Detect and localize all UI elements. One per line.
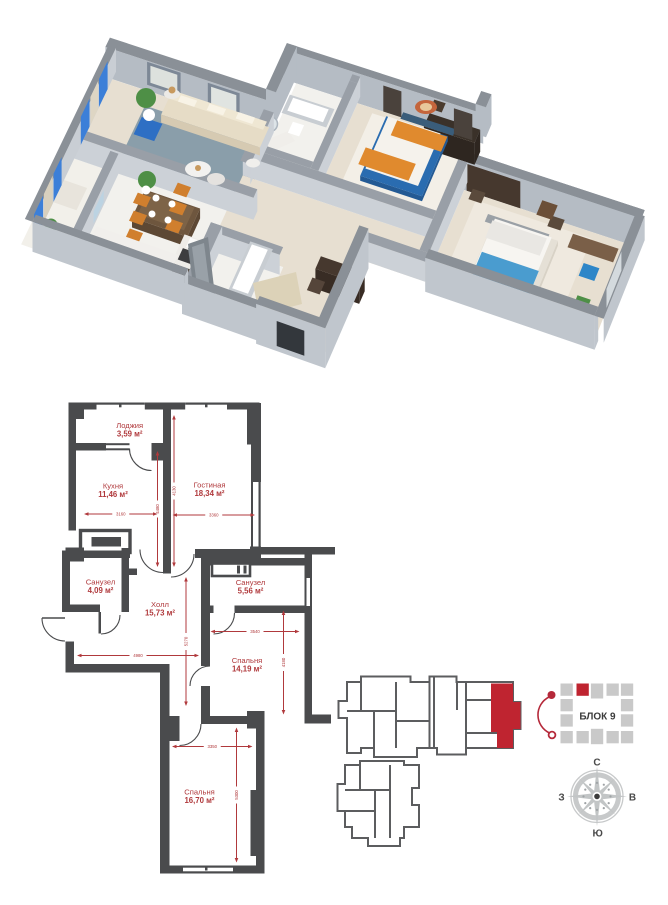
svg-text:14,19 м²: 14,19 м² [232, 665, 262, 674]
svg-text:Ю: Ю [593, 829, 603, 840]
svg-text:3360: 3360 [209, 513, 219, 518]
svg-text:4480: 4480 [155, 504, 160, 514]
svg-text:18,34 м²: 18,34 м² [194, 489, 224, 498]
svg-text:БЛОК 9: БЛОК 9 [579, 712, 616, 723]
svg-text:3540: 3540 [250, 629, 260, 634]
svg-text:5300: 5300 [234, 790, 239, 800]
svg-text:4,09 м²: 4,09 м² [88, 586, 114, 595]
svg-text:В: В [629, 793, 636, 804]
svg-text:3350: 3350 [207, 744, 217, 749]
svg-text:4130: 4130 [172, 486, 177, 496]
svg-text:15,73 м²: 15,73 м² [145, 609, 175, 618]
svg-text:4980: 4980 [133, 653, 143, 658]
svg-text:5270: 5270 [184, 636, 189, 646]
svg-text:С: С [593, 758, 600, 769]
svg-text:5,56 м²: 5,56 м² [238, 587, 264, 596]
svg-text:11,46 м²: 11,46 м² [98, 490, 128, 499]
svg-text:3,59 м²: 3,59 м² [117, 430, 143, 439]
svg-text:З: З [558, 793, 564, 804]
svg-text:3160: 3160 [116, 512, 126, 517]
svg-text:16,70 м²: 16,70 м² [184, 796, 214, 805]
svg-text:4180: 4180 [281, 657, 286, 667]
